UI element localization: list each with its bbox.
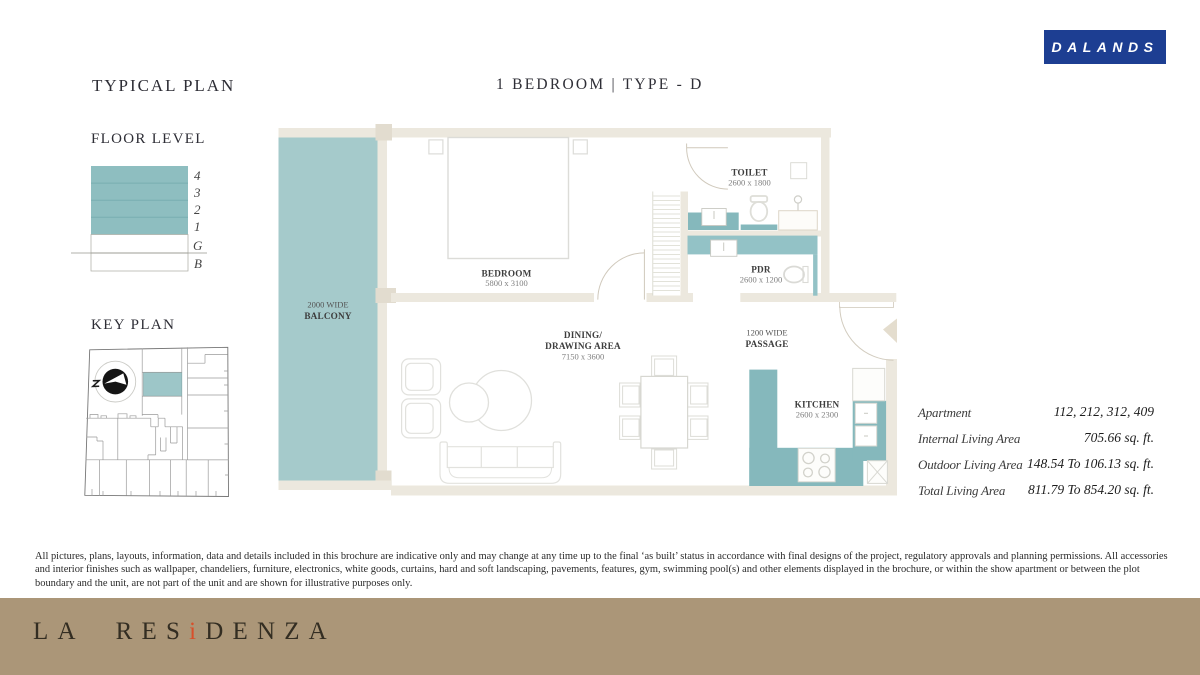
svg-text:1200 WIDE: 1200 WIDE — [746, 328, 787, 338]
svg-text:2600 x 2300: 2600 x 2300 — [796, 409, 839, 419]
svg-text:G: G — [193, 238, 203, 253]
svg-text:DINING/: DINING/ — [564, 330, 602, 340]
svg-text:1: 1 — [194, 219, 201, 234]
svg-text:BALCONY: BALCONY — [304, 311, 352, 321]
svg-text:4: 4 — [194, 168, 201, 183]
svg-text:TOILET: TOILET — [731, 168, 767, 178]
svg-text:5800 x 3100: 5800 x 3100 — [485, 278, 528, 288]
svg-text:PDR: PDR — [751, 265, 771, 275]
svg-text:PASSAGE: PASSAGE — [745, 339, 788, 349]
svg-text:2600 x 1200: 2600 x 1200 — [740, 275, 783, 285]
svg-text:2000 WIDE: 2000 WIDE — [307, 300, 348, 310]
svg-text:2: 2 — [194, 202, 201, 217]
svg-text:KITCHEN: KITCHEN — [795, 400, 840, 410]
svg-text:BEDROOM: BEDROOM — [482, 268, 532, 278]
svg-text:B: B — [194, 256, 202, 271]
svg-text:7150 x 3600: 7150 x 3600 — [562, 351, 605, 361]
svg-text:DRAWING AREA: DRAWING AREA — [545, 341, 621, 351]
svg-text:2600 x 1800: 2600 x 1800 — [728, 178, 771, 188]
svg-text:3: 3 — [193, 185, 201, 200]
